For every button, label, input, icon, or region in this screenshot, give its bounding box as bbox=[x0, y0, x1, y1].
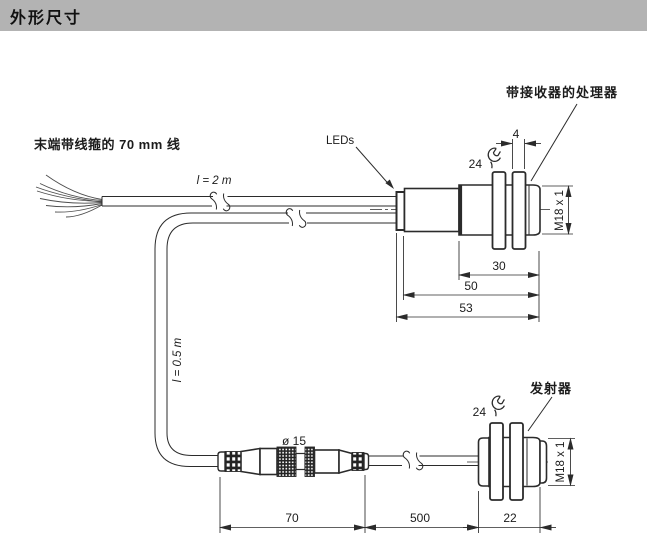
emitter-face-cap bbox=[540, 441, 547, 483]
pigtail-label: 末端带线箍的 70 mm 线 bbox=[33, 137, 180, 152]
pigtail-wires bbox=[36, 175, 102, 217]
connector-right-cap bbox=[364, 454, 369, 470]
leds-callout: LEDs bbox=[326, 135, 394, 189]
receiver-cable bbox=[102, 192, 397, 211]
dim-receiver-thread: M18 x 1 bbox=[542, 186, 573, 234]
connector-knurl-ring-1 bbox=[277, 447, 296, 477]
dim-emitter-thread: M18 x 1 bbox=[548, 439, 575, 486]
leds-label: LEDs bbox=[326, 135, 354, 147]
connector-barrel-left bbox=[260, 449, 277, 475]
inline-connector: ø 15 bbox=[218, 434, 369, 477]
dim-70-value: 70 bbox=[285, 511, 299, 525]
receiver-wrench-size: 24 bbox=[469, 148, 501, 171]
dimension-drawing-page: LEDs 带接收器的处理器 4 24 bbox=[0, 0, 647, 558]
receiver-thread-value: M18 x 1 bbox=[554, 190, 566, 231]
emitter-unit-label: 发射器 bbox=[529, 381, 572, 396]
receiver-led-ring bbox=[397, 192, 405, 230]
connector-shaft bbox=[296, 454, 305, 470]
wrench-icon bbox=[488, 148, 500, 168]
interconnect-cable bbox=[155, 209, 397, 467]
leds-arrowhead bbox=[385, 180, 394, 190]
connector-left-cap bbox=[218, 452, 225, 471]
connector-taper-right bbox=[339, 450, 352, 473]
title-bar: 外形尺寸 bbox=[0, 0, 647, 31]
connector-knurl-ring-2 bbox=[305, 447, 315, 477]
connector-diameter-label: ø 15 bbox=[282, 434, 306, 448]
connector-strain-relief-right bbox=[352, 453, 364, 471]
cable-2m-label: l = 2 m bbox=[197, 175, 232, 187]
dim-53-value: 53 bbox=[459, 301, 473, 315]
receiver-housing bbox=[405, 189, 460, 232]
emitter-callout: 发射器 bbox=[528, 381, 572, 431]
dim-30-value: 30 bbox=[492, 259, 506, 273]
receiver-callout: 带接收器的处理器 bbox=[506, 85, 618, 181]
emitter-wrench-size: 24 bbox=[473, 396, 505, 419]
dim-500-value: 500 bbox=[410, 511, 430, 525]
technical-drawing: LEDs 带接收器的处理器 4 24 bbox=[0, 0, 647, 558]
receiver-unit-label: 带接收器的处理器 bbox=[506, 85, 618, 100]
connector-taper-left bbox=[241, 449, 260, 475]
emitter-nut-2 bbox=[510, 423, 523, 500]
receiver-nut-2 bbox=[513, 172, 526, 249]
receiver-assembly: LEDs 带接收器的处理器 4 24 bbox=[33, 85, 618, 467]
cable-break-icon bbox=[210, 192, 230, 211]
page-title: 外形尺寸 bbox=[10, 4, 82, 28]
cable-break-icon bbox=[286, 209, 306, 228]
dim-4-value: 4 bbox=[513, 127, 520, 141]
receiver-body bbox=[370, 172, 551, 249]
emitter-thread-value: M18 x 1 bbox=[555, 442, 567, 483]
connector-barrel-right bbox=[315, 450, 340, 473]
wrench-icon bbox=[492, 396, 504, 416]
emitter-cable bbox=[369, 451, 479, 470]
receiver-nut-1 bbox=[493, 172, 506, 249]
dim-50-value: 50 bbox=[464, 279, 478, 293]
dim-22-value: 22 bbox=[503, 511, 517, 525]
emitter-assembly: 24 发射器 M18 x 1 bbox=[467, 381, 575, 500]
connector-strain-relief-left bbox=[225, 452, 241, 472]
cable-05m-label: l = 0.5 m bbox=[172, 337, 184, 382]
wrench-24-value: 24 bbox=[473, 405, 487, 419]
emitter-nut-1 bbox=[490, 423, 503, 500]
dim-nut-thickness: 4 bbox=[496, 127, 541, 169]
wrench-24-value: 24 bbox=[469, 157, 483, 171]
cable-break-icon bbox=[403, 451, 423, 470]
